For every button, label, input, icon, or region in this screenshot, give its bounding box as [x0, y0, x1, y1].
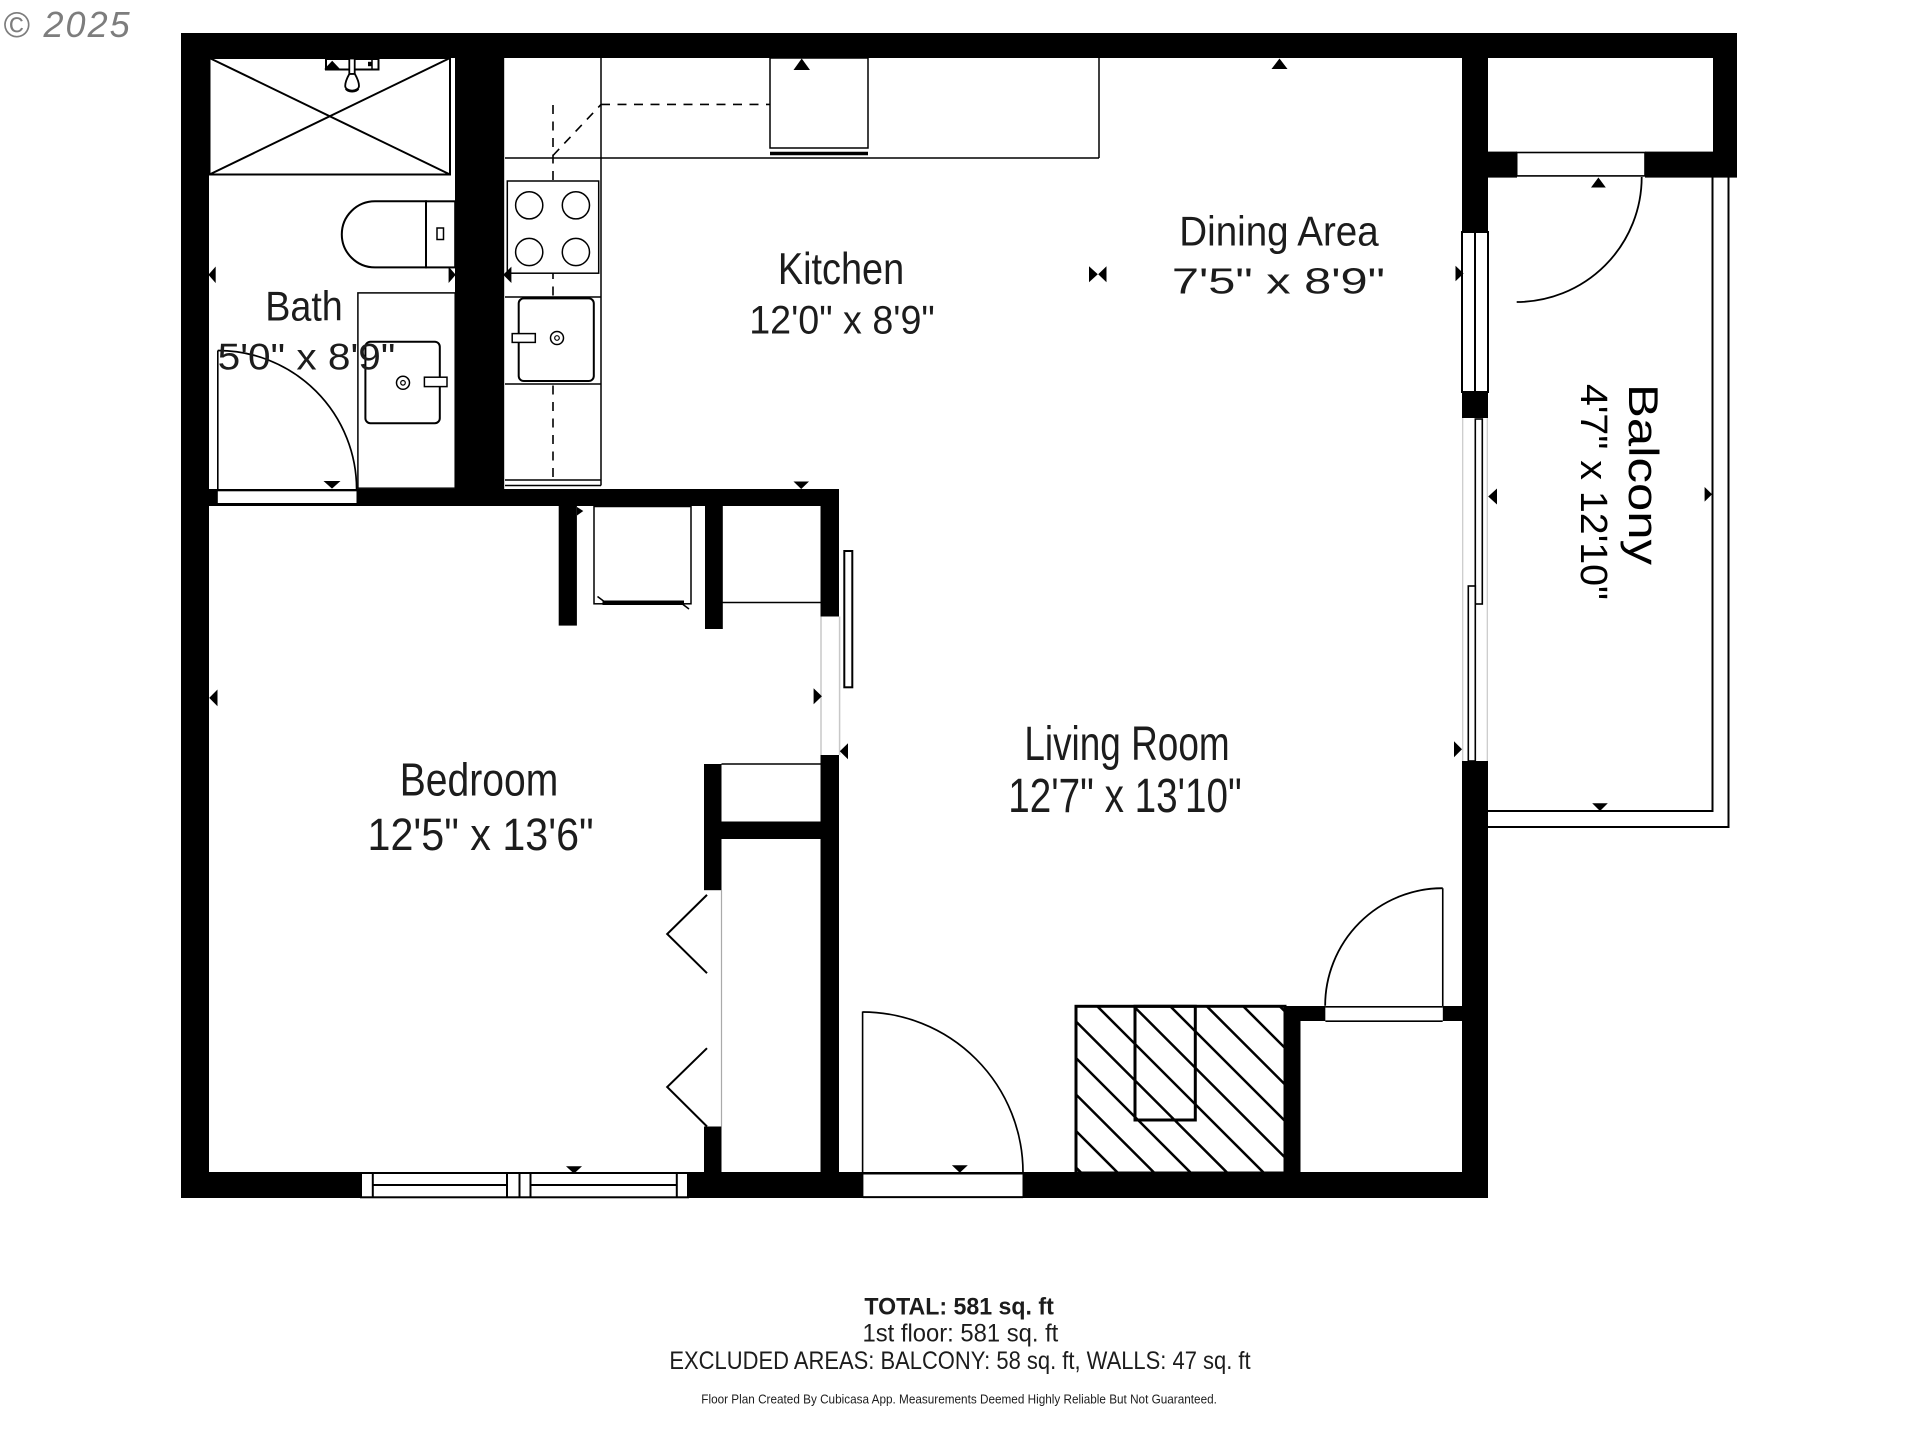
svg-text:Bedroom: Bedroom	[400, 753, 559, 805]
svg-text:TOTAL: 581 sq. ft: TOTAL: 581 sq. ft	[864, 1294, 1053, 1321]
svg-text:12'0" x 8'9": 12'0" x 8'9"	[749, 299, 935, 343]
svg-text:Bath: Bath	[265, 282, 343, 329]
svg-text:4'7" x 12'10": 4'7" x 12'10"	[1572, 384, 1614, 600]
svg-text:Floor Plan Created By Cubicasa: Floor Plan Created By Cubicasa App. Meas…	[701, 1392, 1217, 1407]
svg-text:7'5" x 8'9": 7'5" x 8'9"	[1172, 260, 1385, 301]
svg-text:© 2025: © 2025	[3, 4, 132, 45]
svg-text:Living Room: Living Room	[1024, 718, 1229, 771]
svg-text:Kitchen: Kitchen	[778, 245, 904, 294]
svg-text:5'0" x 8'9": 5'0" x 8'9"	[218, 336, 396, 377]
svg-text:Balcony: Balcony	[1620, 384, 1667, 565]
svg-text:EXCLUDED AREAS: BALCONY: 58 sq: EXCLUDED AREAS: BALCONY: 58 sq. ft, WALL…	[669, 1347, 1250, 1375]
svg-text:1st floor: 581 sq. ft: 1st floor: 581 sq. ft	[863, 1320, 1059, 1348]
svg-text:12'5" x 13'6": 12'5" x 13'6"	[368, 809, 594, 860]
svg-text:12'7" x 13'10": 12'7" x 13'10"	[1008, 770, 1241, 823]
svg-text:Dining Area: Dining Area	[1179, 208, 1379, 255]
